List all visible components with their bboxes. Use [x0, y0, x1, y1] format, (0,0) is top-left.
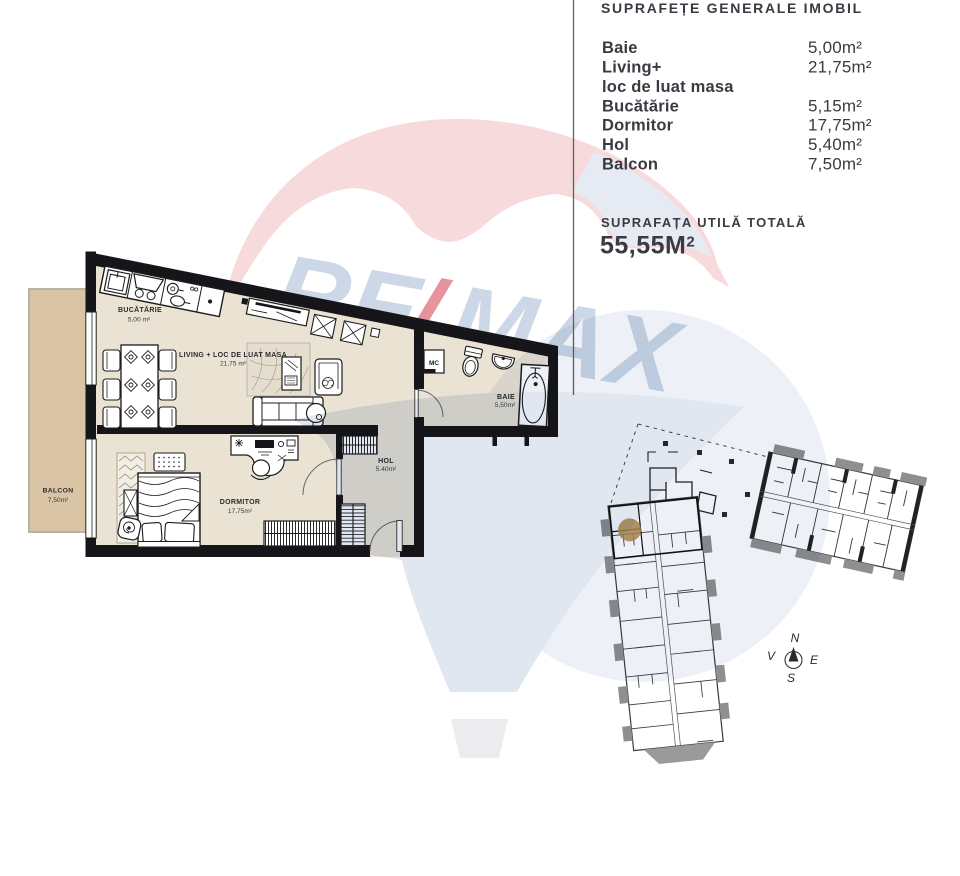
svg-text:5,40m²: 5,40m²: [808, 135, 862, 154]
svg-text:Hol: Hol: [602, 136, 629, 154]
svg-text:BALCON: BALCON: [43, 488, 74, 495]
svg-text:17,75m²: 17,75m²: [808, 116, 872, 135]
svg-text:21,75 m²: 21,75 m²: [220, 361, 247, 368]
svg-text:17,75m²: 17,75m²: [228, 508, 253, 515]
svg-text:loc de luat masa: loc de luat masa: [602, 78, 734, 96]
svg-text:Living+: Living+: [602, 59, 662, 77]
svg-text:BUCĂTĂRIE: BUCĂTĂRIE: [118, 305, 162, 314]
svg-text:5,00m²: 5,00m²: [808, 38, 862, 57]
svg-text:Balcon: Balcon: [602, 156, 658, 174]
svg-text:MC: MC: [429, 360, 439, 367]
svg-text:SUPRAFAȚA UTILĂ TOTALĂ: SUPRAFAȚA UTILĂ TOTALĂ: [601, 215, 807, 230]
svg-text:5,15m²: 5,15m²: [808, 97, 862, 116]
svg-text:Baie: Baie: [602, 39, 638, 57]
svg-text:7,50m²: 7,50m²: [48, 497, 69, 504]
svg-text:E: E: [810, 653, 819, 667]
svg-text:Dormitor: Dormitor: [602, 117, 674, 135]
svg-text:V: V: [767, 649, 776, 663]
svg-text:5,00 m²: 5,00 m²: [128, 317, 151, 324]
svg-text:21,75m²: 21,75m²: [808, 58, 872, 77]
svg-text:55,55M2: 55,55M2: [600, 232, 695, 260]
svg-text:SUPRAFEȚE GENERALE IMOBIL: SUPRAFEȚE GENERALE IMOBIL: [601, 0, 863, 16]
svg-text:LIVING + LOC DE LUAT MASA: LIVING + LOC DE LUAT MASA: [179, 352, 287, 359]
svg-text:7,50m²: 7,50m²: [808, 155, 862, 174]
svg-text:S: S: [787, 671, 795, 685]
svg-text:N: N: [791, 631, 800, 645]
svg-text:Bucătărie: Bucătărie: [602, 98, 679, 116]
svg-text:DORMITOR: DORMITOR: [220, 499, 260, 506]
